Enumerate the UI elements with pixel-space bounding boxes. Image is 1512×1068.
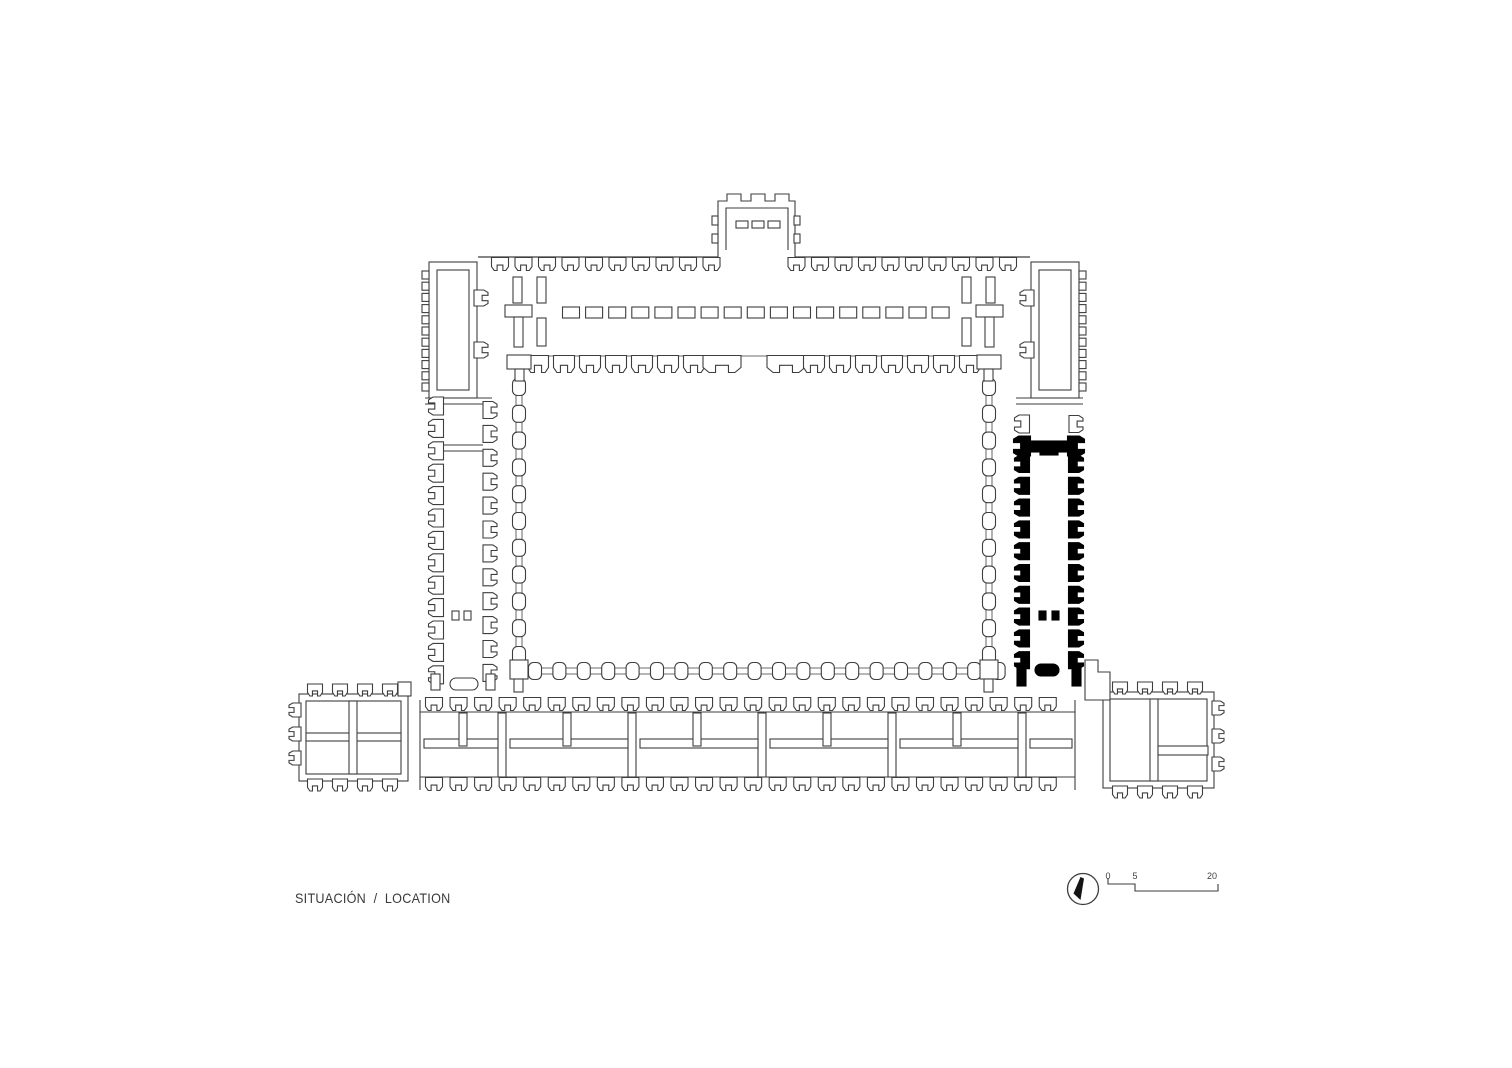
pier [474,342,488,358]
wall-segment [398,682,411,696]
wall-segment [422,282,429,290]
wall-segment [422,338,429,346]
pier [429,554,444,572]
drawing-sheet: 0 5 20 SITUACIÓN / LOCATION [0,0,1512,1068]
column [513,513,526,530]
wall-segment [984,679,993,692]
column [983,459,996,476]
pier [289,703,301,717]
north-wing [478,257,1030,373]
wall-segment [422,361,429,369]
wall-segment [770,307,787,318]
pier [1020,342,1034,358]
column [983,620,996,637]
wall-segment [712,234,718,243]
column [895,663,908,680]
pier [308,779,323,791]
pier [483,641,497,658]
pier [882,356,903,373]
pier [1069,456,1084,473]
wall-segment [429,262,477,398]
wall-segment [953,713,961,746]
wall-segment [752,221,764,228]
wall-segment [563,307,580,318]
wall-segment [450,678,478,690]
column [513,459,526,476]
pier [867,698,884,711]
wall-segment [586,307,603,318]
column [983,539,996,556]
pier [867,778,884,791]
pier [1069,543,1084,560]
pier [429,397,444,415]
wall-segment [932,307,949,318]
column [773,663,786,680]
pier [429,643,444,661]
wall-segment [840,307,857,318]
highlighted-wing [1014,415,1085,686]
pier [843,698,860,711]
pier [483,449,497,466]
wall-segment [1030,739,1072,748]
column [513,405,526,422]
pier [703,258,720,271]
plan-caption: SITUACIÓN / LOCATION [295,890,451,906]
pier [812,258,829,271]
wall-segment [537,318,546,346]
pier [333,779,348,791]
east-tower [1016,262,1086,404]
west-wing [429,397,498,690]
pier [483,425,497,442]
wall-segment [985,317,994,347]
north-arrow-icon [1068,874,1099,905]
pier [1069,565,1084,582]
wall-segment [794,307,811,318]
column [577,663,590,680]
pier [483,569,497,586]
pier [1014,436,1031,456]
pier [429,576,444,594]
pier [633,258,650,271]
wall-segment [1035,664,1059,676]
pier [1000,258,1017,271]
pier [917,778,934,791]
pier [499,778,516,791]
column [529,663,542,680]
scale-bar-line [1108,878,1218,891]
pier [426,698,443,711]
wall-segment [1079,349,1086,357]
wall-segment [422,293,429,301]
pier [934,356,955,373]
wall-segment [1018,713,1026,777]
wall-segment [1031,262,1079,398]
wall-segment [422,383,429,391]
wall-segment [1079,293,1086,301]
column [983,486,996,503]
wall-segment [962,277,971,303]
pier [1015,698,1032,711]
wall-segment [514,317,523,347]
wall-segment [1040,449,1058,455]
pier [515,258,532,271]
pier [745,778,762,791]
pier [830,356,851,373]
pier [990,778,1007,791]
wall-segment [422,349,429,357]
pier [1039,778,1056,791]
column [513,539,526,556]
pier [1069,652,1084,669]
pier [941,698,958,711]
plan-outline [1085,660,1110,700]
floor-plan: 0 5 20 [0,0,1512,1068]
pier [990,698,1007,711]
wall-segment [422,327,429,335]
pier [1015,565,1030,582]
column [602,663,615,680]
column [797,663,810,680]
wall-segment [507,355,531,369]
wall-segment [712,216,718,225]
column [513,566,526,583]
pier [1015,521,1030,538]
column [513,593,526,610]
column [919,663,932,680]
pier [1212,729,1224,743]
pier [524,778,541,791]
pier [1188,786,1203,798]
wall-segment [758,713,766,777]
pier [1015,543,1030,560]
pier [539,258,556,271]
pier [622,698,639,711]
wall-segment [888,713,896,777]
wall-segment [678,307,695,318]
pier [429,442,444,460]
west-pavilion [289,682,411,791]
cloister-arcades [507,355,1005,692]
wall-segment [513,277,522,303]
pier [1069,630,1084,647]
wall-segment [817,307,834,318]
scale-bar: 0 5 20 [1105,871,1218,891]
pier [703,356,741,373]
south-range [420,698,1075,791]
wall-segment [1079,372,1086,380]
pier [658,356,679,373]
wall-segment [1079,305,1086,313]
wall-segment [459,713,467,746]
pier [892,778,909,791]
plan-outline [726,208,788,250]
wall-segment [1072,668,1081,686]
wall-segment [1079,327,1086,335]
pier [429,464,444,482]
pier [483,473,497,490]
wall-segment [1052,611,1059,620]
pier [483,617,497,634]
pier [606,356,627,373]
pier [794,778,811,791]
pier [429,621,444,639]
pier [929,258,946,271]
column [553,663,566,680]
pier [492,258,509,271]
east-pavilion [1085,660,1224,798]
pier [450,698,467,711]
pier [483,521,497,538]
pier [483,593,497,610]
column [968,663,981,680]
pier [383,779,398,791]
pier [720,698,737,711]
pier [1113,786,1128,798]
wall-segment [794,234,800,243]
wall-segment [609,307,626,318]
pier [1015,456,1030,473]
wall-segment [986,277,995,303]
pier [554,356,575,373]
pier [953,258,970,271]
wall-segment [537,277,546,303]
column [983,566,996,583]
pier [483,545,497,562]
pier [580,356,601,373]
north-arrow-needle [1074,877,1085,900]
wall-segment [1079,361,1086,369]
pier [1138,786,1153,798]
scale-label-0: 0 [1105,871,1110,881]
column [513,486,526,503]
pier [680,258,697,271]
pier [358,779,373,791]
pier [818,778,835,791]
pier [1015,499,1030,516]
pier [573,778,590,791]
pier [429,531,444,549]
wall-segment [747,307,764,318]
pier [906,258,923,271]
pier [548,778,565,791]
pier [656,258,673,271]
wall-segment [1158,746,1208,755]
wall-segment [422,305,429,313]
wall-segment [515,369,524,381]
pier [1069,608,1084,625]
column [821,663,834,680]
pier [429,509,444,527]
wall-segment [886,307,903,318]
wall-segment [724,307,741,318]
pier [696,778,713,791]
pier [859,258,876,271]
column [513,620,526,637]
column [943,663,956,680]
wall-segment [498,713,506,777]
pier [788,258,805,271]
pier [769,778,786,791]
pier [843,778,860,791]
wall-segment [655,307,672,318]
wall-segment [823,713,831,746]
pier [1015,415,1030,433]
wall-segment [980,660,998,679]
plan-geometry [289,194,1224,798]
pier [794,698,811,711]
pier [1069,477,1084,494]
wall-segment [422,271,429,279]
wall-segment [909,307,926,318]
pier [562,258,579,271]
pier [289,751,301,765]
wall-segment [486,674,495,690]
pier [882,258,899,271]
wall-segment [701,307,718,318]
column [748,663,761,680]
pier [450,778,467,791]
pier [769,698,786,711]
pier [804,356,825,373]
pier [622,778,639,791]
column [870,663,883,680]
wall-segment [1039,611,1046,620]
wall-segment [984,369,993,381]
column [626,663,639,680]
wall-segment [514,679,523,692]
west-tower [422,262,492,404]
pier [856,356,877,373]
wall-segment [632,307,649,318]
pier [474,290,488,306]
pier [483,402,497,419]
pier [671,698,688,711]
wall-segment [510,660,528,679]
wall-segment [452,611,459,620]
pier [818,698,835,711]
wall-segment [349,701,357,774]
pier [429,419,444,437]
pier [483,497,497,514]
pier [1015,630,1030,647]
pier [1015,608,1030,625]
pier [745,698,762,711]
pier [1069,499,1084,516]
pier [1069,416,1083,433]
wall-segment [505,305,532,317]
wall-segment [977,355,1001,369]
wall-segment [422,316,429,324]
column [983,593,996,610]
wall-segment [563,713,571,746]
pier [1015,652,1030,669]
scale-label-5: 5 [1132,871,1137,881]
wall-segment [962,318,971,346]
pier [429,599,444,617]
pier [1212,757,1224,771]
pier [429,487,444,505]
chapel [712,194,800,257]
pier [1015,778,1032,791]
wall-segment [863,307,880,318]
pier [1020,290,1034,306]
pier [597,778,614,791]
wall-segment [422,372,429,380]
wall-segment [976,305,1003,317]
wall-segment [1017,668,1026,686]
wall-segment [1079,383,1086,391]
wall-segment [768,221,780,228]
pier [1069,586,1084,603]
pier [941,778,958,791]
pier [1212,701,1224,715]
column [513,432,526,449]
pier [609,258,626,271]
wall-segment [1079,316,1086,324]
pier [632,356,653,373]
scale-label-20: 20 [1207,871,1217,881]
pier [426,778,443,791]
pier [524,698,541,711]
wall-segment [693,713,701,746]
pier [1015,586,1030,603]
pier [597,698,614,711]
wall-segment [464,611,471,620]
pier [908,356,929,373]
column [983,432,996,449]
pier [475,778,492,791]
pier [499,698,516,711]
column [983,405,996,422]
pier [475,698,492,711]
pier [696,698,713,711]
pier [767,356,805,373]
column [699,663,712,680]
column [675,663,688,680]
pier [1069,521,1084,538]
wall-segment [431,674,440,690]
pier [573,698,590,711]
wall-segment [736,221,748,228]
pier [966,778,983,791]
pier [586,258,603,271]
wall-segment [1079,271,1086,279]
pier [548,698,565,711]
pier [917,698,934,711]
column [724,663,737,680]
column [983,513,996,530]
pier [1039,698,1056,711]
pier [1015,477,1030,494]
column [651,663,664,680]
pier [646,778,663,791]
pier [1163,786,1178,798]
pier [966,698,983,711]
column [846,663,859,680]
wall-segment [794,216,800,225]
pier [646,698,663,711]
wall-segment [1150,699,1158,781]
pier [892,698,909,711]
pier [1068,436,1085,456]
pier [289,727,301,741]
pier [835,258,852,271]
wall-segment [1079,338,1086,346]
pier [720,778,737,791]
pier [671,778,688,791]
pier [976,258,993,271]
